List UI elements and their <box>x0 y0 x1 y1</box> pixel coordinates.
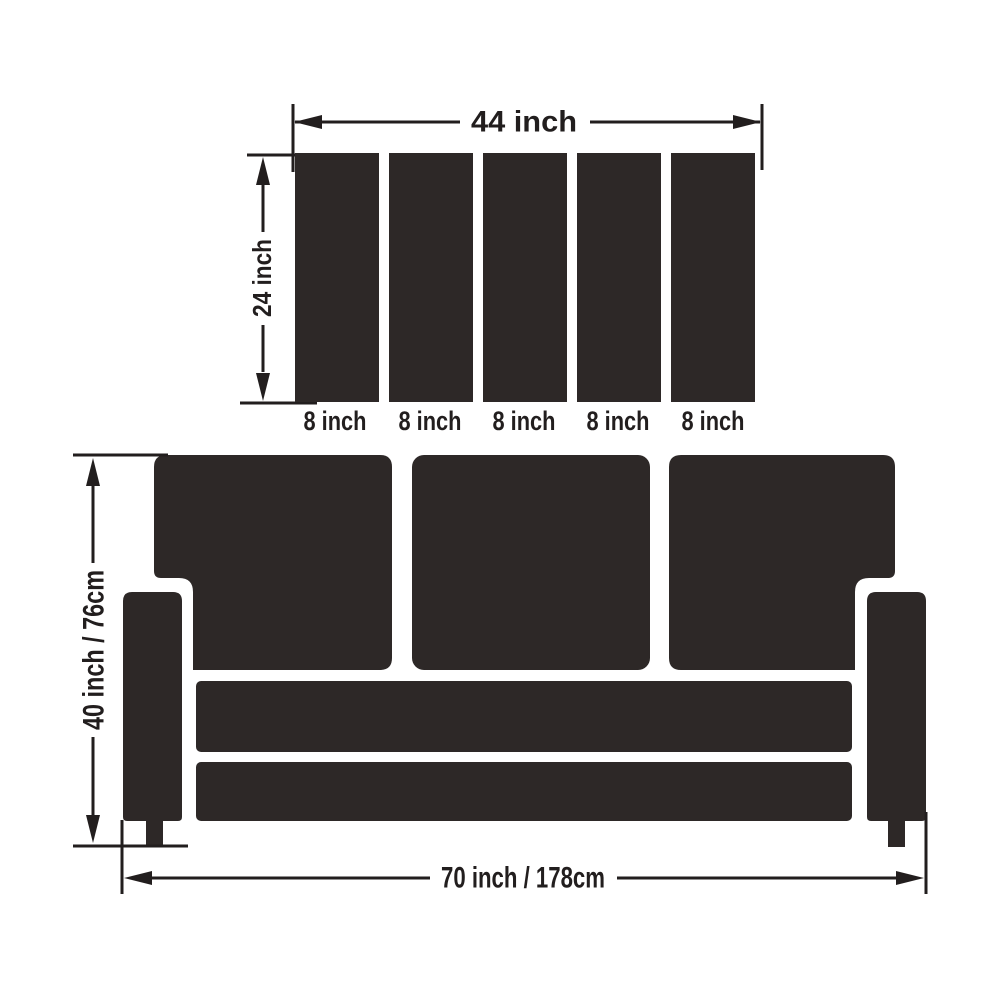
panel-slat-1 <box>295 153 379 402</box>
sofa-width-label: 70 inch / 178cm <box>441 862 605 895</box>
panel-slats <box>295 153 755 402</box>
arrowhead-right <box>896 871 924 885</box>
panel-slat-4 <box>577 153 661 402</box>
panel-slat-2 <box>389 153 473 402</box>
panel-slat-3 <box>483 153 567 402</box>
arrowhead-up <box>256 157 270 185</box>
slat-label-2: 8 inch <box>399 406 462 436</box>
leg-left <box>146 821 163 847</box>
seat-panels <box>196 681 852 821</box>
panel-height-label: 24 inch <box>247 239 277 317</box>
back-cushion-right <box>669 455 895 670</box>
seat-front-panel <box>196 681 852 752</box>
slat-label-4: 8 inch <box>587 406 650 436</box>
slat-width-labels: 8 inch 8 inch 8 inch 8 inch 8 inch <box>304 406 745 436</box>
arrowhead-up <box>86 458 100 486</box>
back-cushion-middle <box>412 455 650 670</box>
diagram-canvas: 44 inch 24 inch 8 inch 8 inch 8 inch 8 i… <box>0 0 1000 1000</box>
armrest-right <box>867 592 926 821</box>
arrowhead-down <box>86 815 100 843</box>
arrowhead-left <box>124 871 152 885</box>
leg-right <box>888 821 905 847</box>
slat-label-3: 8 inch <box>493 406 556 436</box>
arrowhead-down <box>256 373 270 401</box>
back-panel-top-view: 44 inch 24 inch 8 inch 8 inch 8 inch 8 i… <box>240 104 762 436</box>
panel-slat-5 <box>671 153 755 402</box>
armrest-left <box>123 592 182 821</box>
arrowhead-left <box>294 115 322 129</box>
sofa-dimension-diagram: 44 inch 24 inch 8 inch 8 inch 8 inch 8 i… <box>0 0 1000 1000</box>
back-cushion-left <box>154 455 392 670</box>
slat-label-5: 8 inch <box>682 406 745 436</box>
sofa-legs <box>146 821 905 847</box>
back-cushions <box>154 455 895 670</box>
arrowhead-right <box>733 115 761 129</box>
sofa-height-label: 40 inch / 76cm <box>78 570 111 730</box>
sofa-front-view: 40 inch / 76cm 70 inch / 178cm <box>73 455 926 895</box>
panel-width-label: 44 inch <box>471 106 577 139</box>
base-front-panel <box>196 762 852 821</box>
width-dimension-70: 70 inch / 178cm <box>122 812 926 895</box>
slat-label-1: 8 inch <box>304 406 367 436</box>
